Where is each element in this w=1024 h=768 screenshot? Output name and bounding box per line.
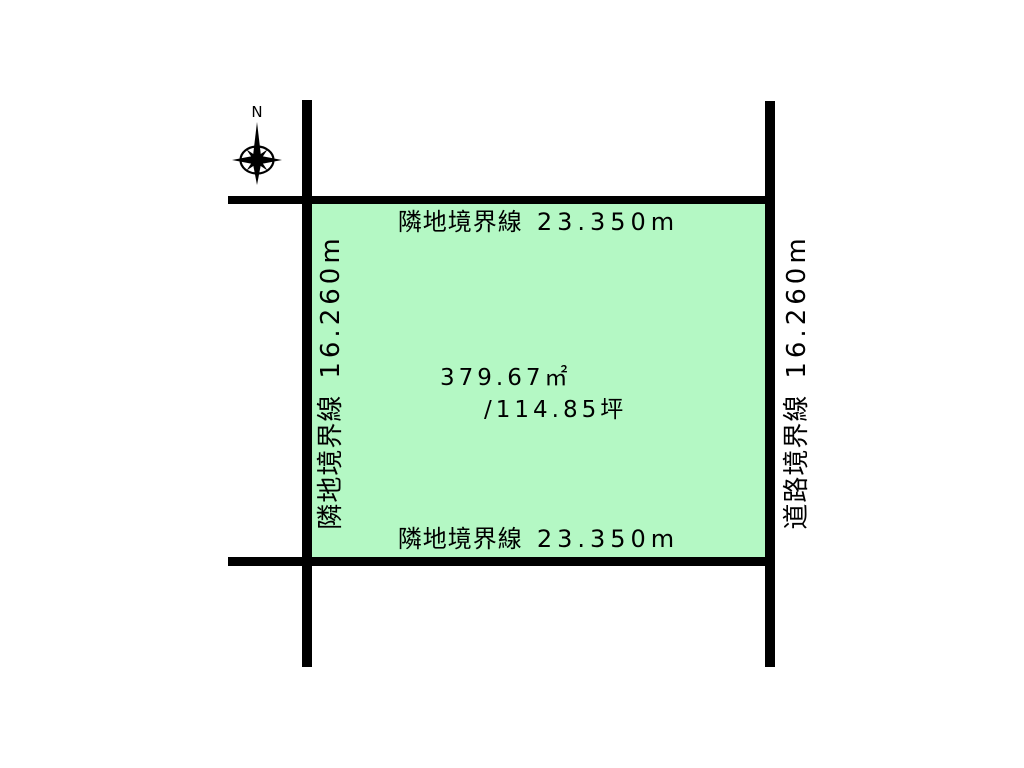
top-boundary-name: 隣地境界線 [398, 208, 523, 236]
left-boundary-length: 16.260m [316, 234, 346, 378]
bottom-boundary-name: 隣地境界線 [398, 525, 523, 553]
bottom-boundary-line [228, 557, 775, 566]
left-boundary-label: 隣地境界線16.260m [315, 222, 347, 542]
compass-north-icon: N [225, 100, 289, 195]
top-boundary-length: 23.350m [537, 208, 679, 236]
parcel-area-label: 379.67㎡ /114.85坪 [440, 362, 627, 426]
parcel-area-tsubo: /114.85坪 [484, 394, 627, 426]
top-boundary-label: 隣地境界線23.350m [307, 209, 770, 235]
top-boundary-line [228, 196, 775, 204]
right-road-line [765, 101, 775, 667]
right-road-length: 16.260m [782, 234, 812, 378]
left-boundary-line [302, 100, 312, 667]
left-boundary-name: 隣地境界線 [316, 395, 346, 530]
right-road-label: 道路境界線16.260m [781, 222, 813, 542]
bottom-boundary-length: 23.350m [537, 525, 679, 553]
site-plan: N 隣地境界線23.350m 隣地境界線23.350m 隣地境界線16.260m… [0, 0, 1024, 768]
parcel-area-m2: 379.67㎡ [440, 362, 627, 394]
right-road-name: 道路境界線 [782, 395, 812, 530]
bottom-boundary-label: 隣地境界線23.350m [307, 526, 770, 552]
compass-north-label: N [251, 103, 262, 121]
